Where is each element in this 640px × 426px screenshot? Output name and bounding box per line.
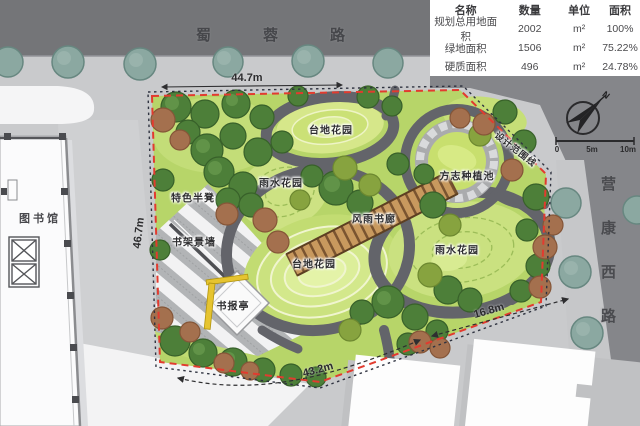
header-unit: 单位 (558, 2, 600, 18)
table-row: 绿地面积 1506 m² 75.22% (430, 39, 640, 58)
label-bookshelf-wall: 书架景墙 (172, 234, 216, 249)
area-statistics-table: 名称 数量 单位 面积 规划总用地面积 2002 m² 100% 绿地面积 15… (430, 0, 640, 76)
corner-sidewalk (0, 86, 94, 124)
scale-end-label: 10m (620, 145, 636, 154)
cell-area: 75.22% (600, 42, 640, 54)
header-area: 面积 (600, 2, 640, 18)
cell-quantity: 1506 (501, 42, 558, 54)
cell-unit: m² (558, 42, 600, 54)
table-row: 硬质面积 496 m² 24.78% (430, 57, 640, 76)
dimension-top: 44.7m (231, 72, 262, 84)
site-plan-screenshot: 蜀蓉路 营康西路 图书馆 台地花园 雨水花园 方志种植池 风雨书廊 雨水花园 台… (0, 0, 640, 426)
cell-quantity: 2002 (501, 23, 558, 35)
scale-zero-label: 0 (555, 145, 559, 154)
label-book-corridor: 风雨书廊 (352, 211, 396, 226)
cell-area: 24.78% (600, 61, 640, 73)
library-label: 图书馆 (19, 210, 61, 226)
label-feature-bench: 特色半凳 (171, 190, 215, 205)
street-name-top: 蜀蓉路 (196, 24, 397, 45)
cell-name: 绿地面积 (430, 41, 501, 56)
cell-unit: m² (558, 61, 600, 73)
header-quantity: 数量 (501, 2, 558, 18)
cell-name: 硬质面积 (430, 59, 501, 74)
scale-mid-label: 5m (586, 145, 598, 154)
label-terrace-garden-center: 台地花园 (292, 256, 336, 271)
label-terrace-garden-top: 台地花园 (309, 122, 353, 137)
label-rain-garden-right: 雨水花园 (435, 242, 479, 257)
street-name-right: 营康西路 (597, 176, 618, 352)
table-row: 规划总用地面积 2002 m² 100% (430, 20, 640, 39)
cell-quantity: 496 (501, 61, 558, 73)
cell-unit: m² (558, 23, 600, 35)
label-rain-garden-left: 雨水花园 (259, 175, 303, 190)
label-planter: 方志种植池 (440, 168, 495, 183)
cell-area: 100% (600, 23, 640, 35)
label-book-kiosk: 书报亭 (217, 298, 250, 313)
